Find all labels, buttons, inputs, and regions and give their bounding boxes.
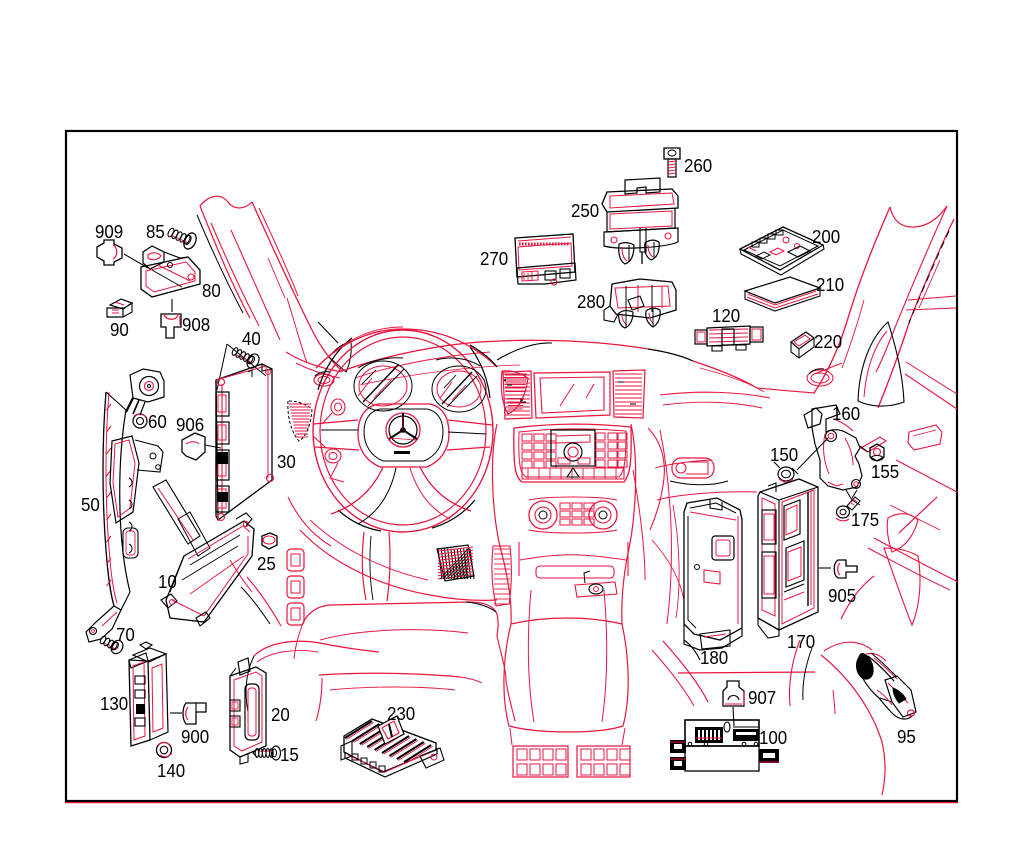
svg-text:120: 120: [712, 305, 740, 326]
svg-text:908: 908: [182, 314, 210, 335]
svg-text:155: 155: [871, 461, 899, 482]
svg-text:25: 25: [257, 553, 276, 574]
svg-text:170: 170: [787, 631, 815, 652]
svg-text:80: 80: [202, 280, 221, 301]
svg-text:150: 150: [770, 444, 798, 465]
svg-text:160: 160: [832, 403, 860, 424]
svg-text:230: 230: [387, 703, 415, 724]
svg-text:260: 260: [684, 155, 712, 176]
svg-text:40: 40: [242, 328, 261, 349]
svg-text:90: 90: [110, 319, 129, 340]
svg-text:906: 906: [176, 414, 204, 435]
svg-text:85: 85: [146, 221, 165, 242]
svg-text:130: 130: [100, 693, 128, 714]
svg-text:100: 100: [759, 727, 787, 748]
svg-text:60: 60: [148, 411, 167, 432]
svg-text:220: 220: [814, 331, 842, 352]
svg-text:175: 175: [851, 509, 879, 530]
svg-text:907: 907: [748, 687, 776, 708]
svg-text:140: 140: [157, 760, 185, 781]
svg-text:50: 50: [81, 494, 100, 515]
svg-text:905: 905: [828, 585, 856, 606]
svg-text:270: 270: [480, 248, 508, 269]
svg-text:909: 909: [95, 221, 123, 242]
svg-text:95: 95: [897, 726, 916, 747]
svg-text:15: 15: [280, 744, 299, 765]
svg-text:200: 200: [812, 226, 840, 247]
svg-text:280: 280: [577, 291, 605, 312]
svg-text:30: 30: [277, 451, 296, 472]
svg-text:10: 10: [158, 571, 177, 592]
svg-text:180: 180: [700, 647, 728, 668]
svg-text:20: 20: [271, 704, 290, 725]
svg-text:900: 900: [181, 726, 209, 747]
svg-text:250: 250: [571, 200, 599, 221]
svg-text:210: 210: [816, 274, 844, 295]
svg-text:70: 70: [116, 624, 135, 645]
